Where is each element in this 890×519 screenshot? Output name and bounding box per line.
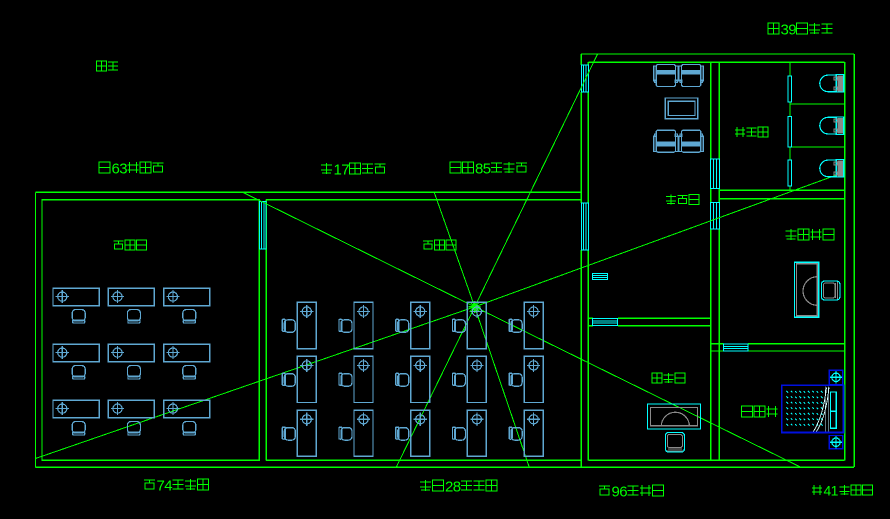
svg-text:28: 28 [445, 479, 461, 496]
svg-text:85: 85 [475, 161, 491, 178]
svg-text:39: 39 [781, 22, 797, 39]
svg-text:74: 74 [157, 478, 173, 495]
svg-text:63: 63 [112, 161, 128, 178]
svg-text:17: 17 [334, 162, 350, 179]
svg-text:41: 41 [824, 483, 839, 499]
svg-text:96: 96 [612, 484, 628, 501]
